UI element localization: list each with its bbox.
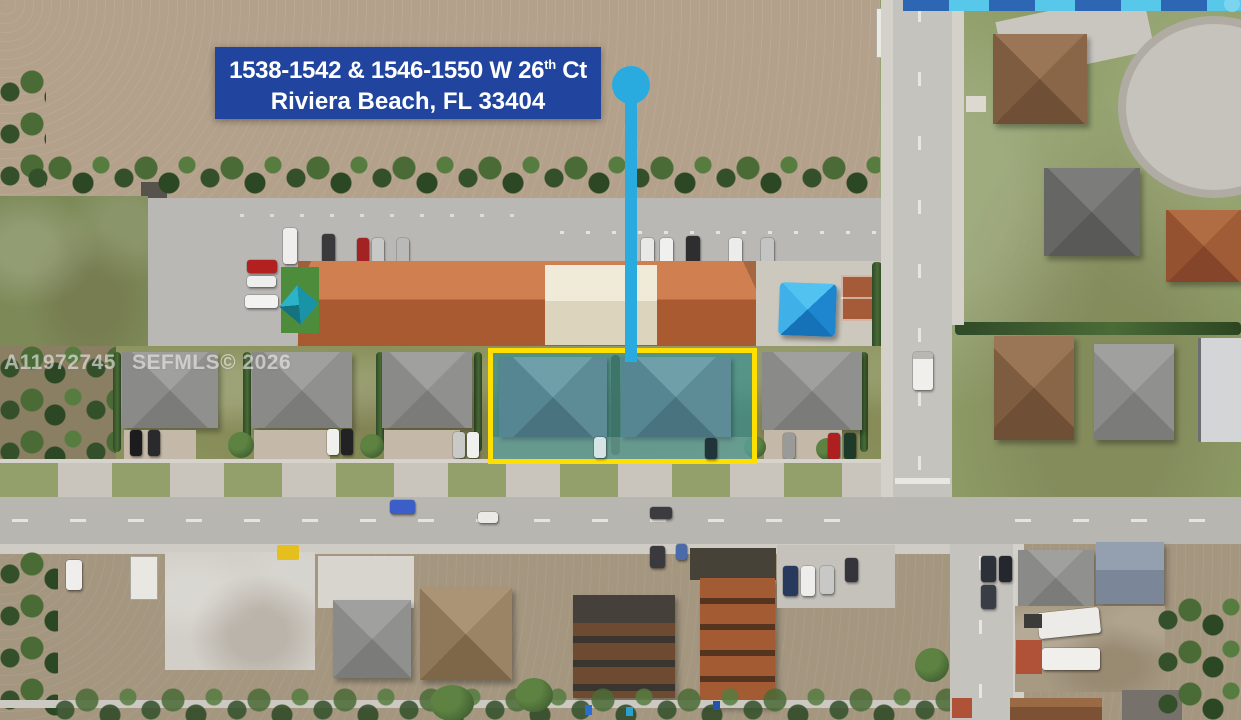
- equipment: [1024, 614, 1042, 628]
- parked-car: [828, 433, 840, 459]
- watermark: A11972745SEFMLS© 2026: [4, 351, 291, 375]
- parked-car: [676, 544, 687, 560]
- lane-marking: [918, 8, 921, 478]
- subject-duplex-roof: [499, 357, 607, 437]
- house-roof: [994, 336, 1074, 440]
- grass-verge: [0, 463, 893, 497]
- dumpster: [277, 545, 299, 560]
- lane-marking: [12, 519, 872, 522]
- building-roof: [1198, 338, 1241, 442]
- pickup-truck: [390, 500, 415, 514]
- building-roof: [1096, 542, 1164, 604]
- parked-car: [705, 438, 717, 459]
- address-line2: Riviera Beach, FL 33404: [215, 87, 601, 117]
- subject-duplex-roof: [621, 357, 731, 437]
- subject-property-highlight-box: [488, 348, 757, 464]
- parked-car: [467, 432, 479, 458]
- shade-canopy: [778, 282, 837, 337]
- parked-car: [594, 437, 606, 458]
- tree-line: [0, 552, 58, 720]
- parked-van: [245, 295, 278, 308]
- parked-van: [283, 228, 297, 264]
- tree-line: [1158, 598, 1241, 720]
- location-pin-icon: [612, 66, 650, 104]
- roof-light-section: [545, 265, 657, 345]
- house-roof: [1010, 698, 1102, 720]
- house-roof: [1044, 168, 1140, 256]
- recycle-bin: [585, 705, 592, 715]
- bush: [360, 434, 384, 458]
- duplex-roof: [382, 352, 472, 428]
- parked-car: [148, 430, 160, 456]
- parked-car: [453, 432, 465, 458]
- parked-car: [247, 260, 277, 273]
- address-line1: 1538-1542 & 1546-1550 W 26th Ct: [215, 49, 601, 87]
- tree-line: [28, 156, 880, 202]
- rv-trailer: [1042, 648, 1100, 670]
- hedge-row: [55, 688, 950, 720]
- parked-car: [801, 566, 815, 596]
- ordinal-superscript: th: [544, 57, 556, 72]
- house-roof: [1094, 344, 1174, 440]
- concrete-pad: [165, 552, 315, 670]
- house-roof: [333, 600, 411, 678]
- parked-car: [130, 430, 142, 456]
- parked-car: [327, 429, 339, 455]
- parked-car: [981, 556, 996, 582]
- stop-bar: [895, 478, 950, 484]
- duplex-roof: [762, 352, 862, 430]
- parked-car: [650, 546, 665, 568]
- tree: [515, 678, 553, 712]
- sidewalk: [952, 0, 964, 325]
- car-on-street: [478, 512, 498, 523]
- clay-patch: [952, 698, 972, 718]
- parked-car: [783, 566, 798, 596]
- lane-marking: [240, 214, 540, 217]
- bush: [228, 432, 254, 458]
- house-roof: [993, 34, 1087, 124]
- flat-roof: [690, 548, 776, 580]
- aerial-photo: 1538-1542 & 1546-1550 W 26th Ct Riviera …: [0, 0, 1241, 720]
- lane-marking: [560, 231, 890, 234]
- street-vertical: [893, 0, 952, 497]
- mls-id: A11972745: [4, 351, 116, 374]
- tree: [430, 685, 474, 720]
- parked-car: [999, 556, 1012, 582]
- house-roof: [420, 588, 512, 680]
- parked-car: [247, 276, 276, 287]
- rowhouse-roof: [573, 595, 675, 698]
- shed-roof: [130, 556, 158, 600]
- rowhouse-roof: [700, 578, 775, 706]
- recycle-bin: [713, 701, 720, 710]
- house-roof: [1166, 210, 1241, 282]
- parked-car: [322, 234, 335, 263]
- parked-car: [844, 433, 856, 459]
- parked-car: [845, 558, 858, 582]
- parked-car: [341, 429, 353, 455]
- photo-strip: [903, 0, 1241, 11]
- house-roof: [1018, 550, 1094, 606]
- pin-stem: [625, 98, 637, 362]
- shed-roof: [966, 96, 986, 112]
- tree: [915, 648, 949, 682]
- clay-patch: [1016, 640, 1042, 674]
- sidewalk: [881, 0, 893, 497]
- retail-building-roof: [298, 261, 756, 347]
- parked-car: [820, 566, 834, 594]
- parked-car: [783, 433, 795, 459]
- grass-strip: [0, 196, 148, 348]
- white-van: [913, 352, 933, 390]
- recycle-bin: [626, 707, 633, 716]
- address-banner: 1538-1542 & 1546-1550 W 26th Ct Riviera …: [215, 47, 601, 119]
- parked-car: [66, 560, 82, 590]
- hedge: [955, 322, 1241, 335]
- mls-source: SEFMLS© 2026: [132, 351, 291, 374]
- car-on-street: [650, 507, 672, 519]
- parked-car: [981, 585, 996, 609]
- lane-marking: [1015, 519, 1241, 522]
